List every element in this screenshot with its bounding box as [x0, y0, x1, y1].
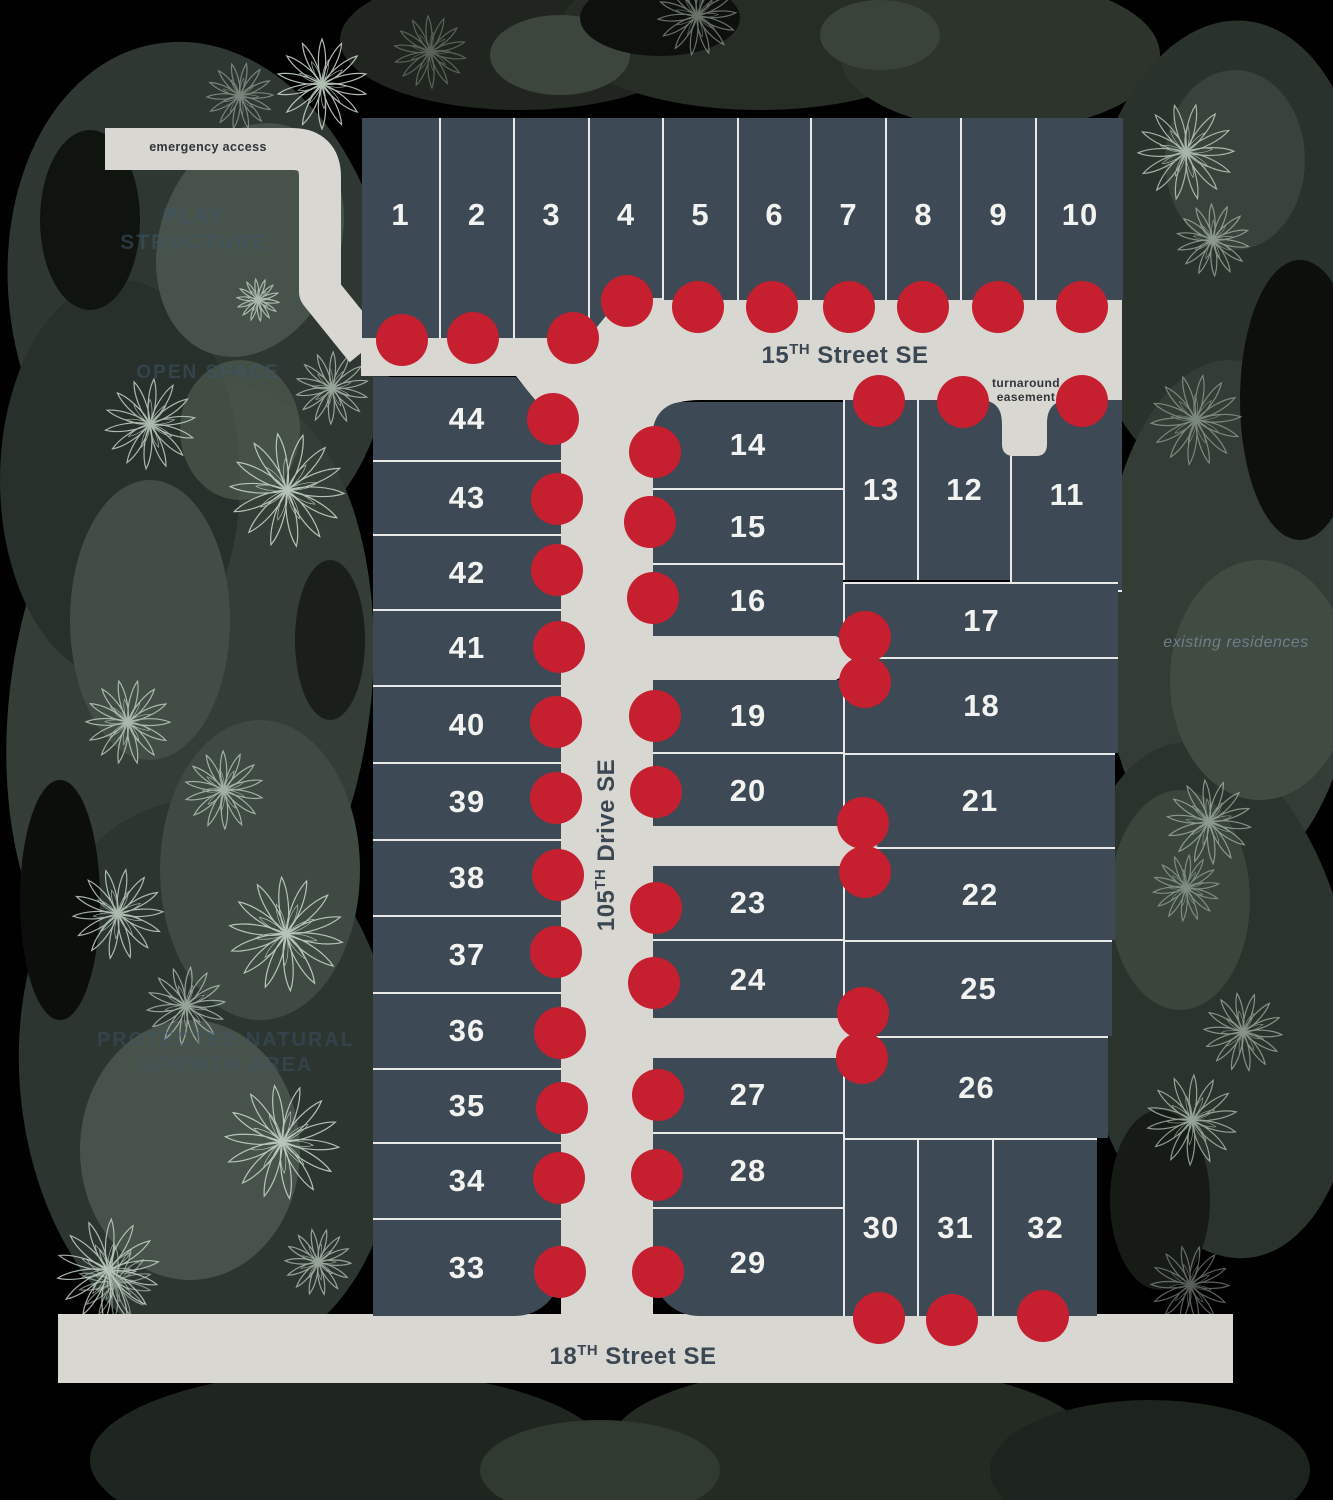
lot-42-marker-dot[interactable]: [531, 544, 583, 596]
lot-markers-layer: [0, 0, 1333, 1500]
lot-24-marker-dot[interactable]: [628, 957, 680, 1009]
lot-33-marker-dot[interactable]: [534, 1246, 586, 1298]
lot-3-marker-dot[interactable]: [547, 312, 599, 364]
lot-13-marker-dot[interactable]: [853, 375, 905, 427]
lot-8-marker-dot[interactable]: [897, 281, 949, 333]
lot-19-marker-dot[interactable]: [629, 690, 681, 742]
lot-4-marker-dot[interactable]: [601, 275, 653, 327]
lot-14-marker-dot[interactable]: [629, 426, 681, 478]
lot-10-marker-dot[interactable]: [1056, 281, 1108, 333]
lot-34-marker-dot[interactable]: [533, 1152, 585, 1204]
lot-35-marker-dot[interactable]: [536, 1082, 588, 1134]
lot-31-marker-dot[interactable]: [926, 1294, 978, 1346]
lot-11-marker-dot[interactable]: [1056, 375, 1108, 427]
lot-40-marker-dot[interactable]: [530, 696, 582, 748]
lot-38-marker-dot[interactable]: [532, 849, 584, 901]
lot-32-marker-dot[interactable]: [1017, 1290, 1069, 1342]
lot-36-marker-dot[interactable]: [534, 1007, 586, 1059]
lot-21-marker-dot[interactable]: [837, 797, 889, 849]
lot-20-marker-dot[interactable]: [630, 766, 682, 818]
lot-16-marker-dot[interactable]: [627, 572, 679, 624]
lot-43-marker-dot[interactable]: [531, 473, 583, 525]
lot-1-marker-dot[interactable]: [376, 314, 428, 366]
lot-29-marker-dot[interactable]: [632, 1246, 684, 1298]
lot-9-marker-dot[interactable]: [972, 281, 1024, 333]
lot-12-marker-dot[interactable]: [937, 376, 989, 428]
lot-37-marker-dot[interactable]: [530, 926, 582, 978]
lot-41-marker-dot[interactable]: [533, 621, 585, 673]
lot-7-marker-dot[interactable]: [823, 281, 875, 333]
lot-15-marker-dot[interactable]: [624, 496, 676, 548]
lot-5-marker-dot[interactable]: [672, 281, 724, 333]
lot-18-marker-dot[interactable]: [839, 656, 891, 708]
lot-6-marker-dot[interactable]: [746, 281, 798, 333]
lot-44-marker-dot[interactable]: [527, 393, 579, 445]
lot-2-marker-dot[interactable]: [447, 312, 499, 364]
lot-22-marker-dot[interactable]: [839, 846, 891, 898]
lot-27-marker-dot[interactable]: [632, 1069, 684, 1121]
lot-26-marker-dot[interactable]: [836, 1032, 888, 1084]
lot-28-marker-dot[interactable]: [631, 1149, 683, 1201]
lot-30-marker-dot[interactable]: [853, 1292, 905, 1344]
site-plan-map: PLAY STRUCTURE OPEN SPACE PROTECTED NATU…: [0, 0, 1333, 1500]
lot-39-marker-dot[interactable]: [530, 772, 582, 824]
lot-23-marker-dot[interactable]: [630, 882, 682, 934]
